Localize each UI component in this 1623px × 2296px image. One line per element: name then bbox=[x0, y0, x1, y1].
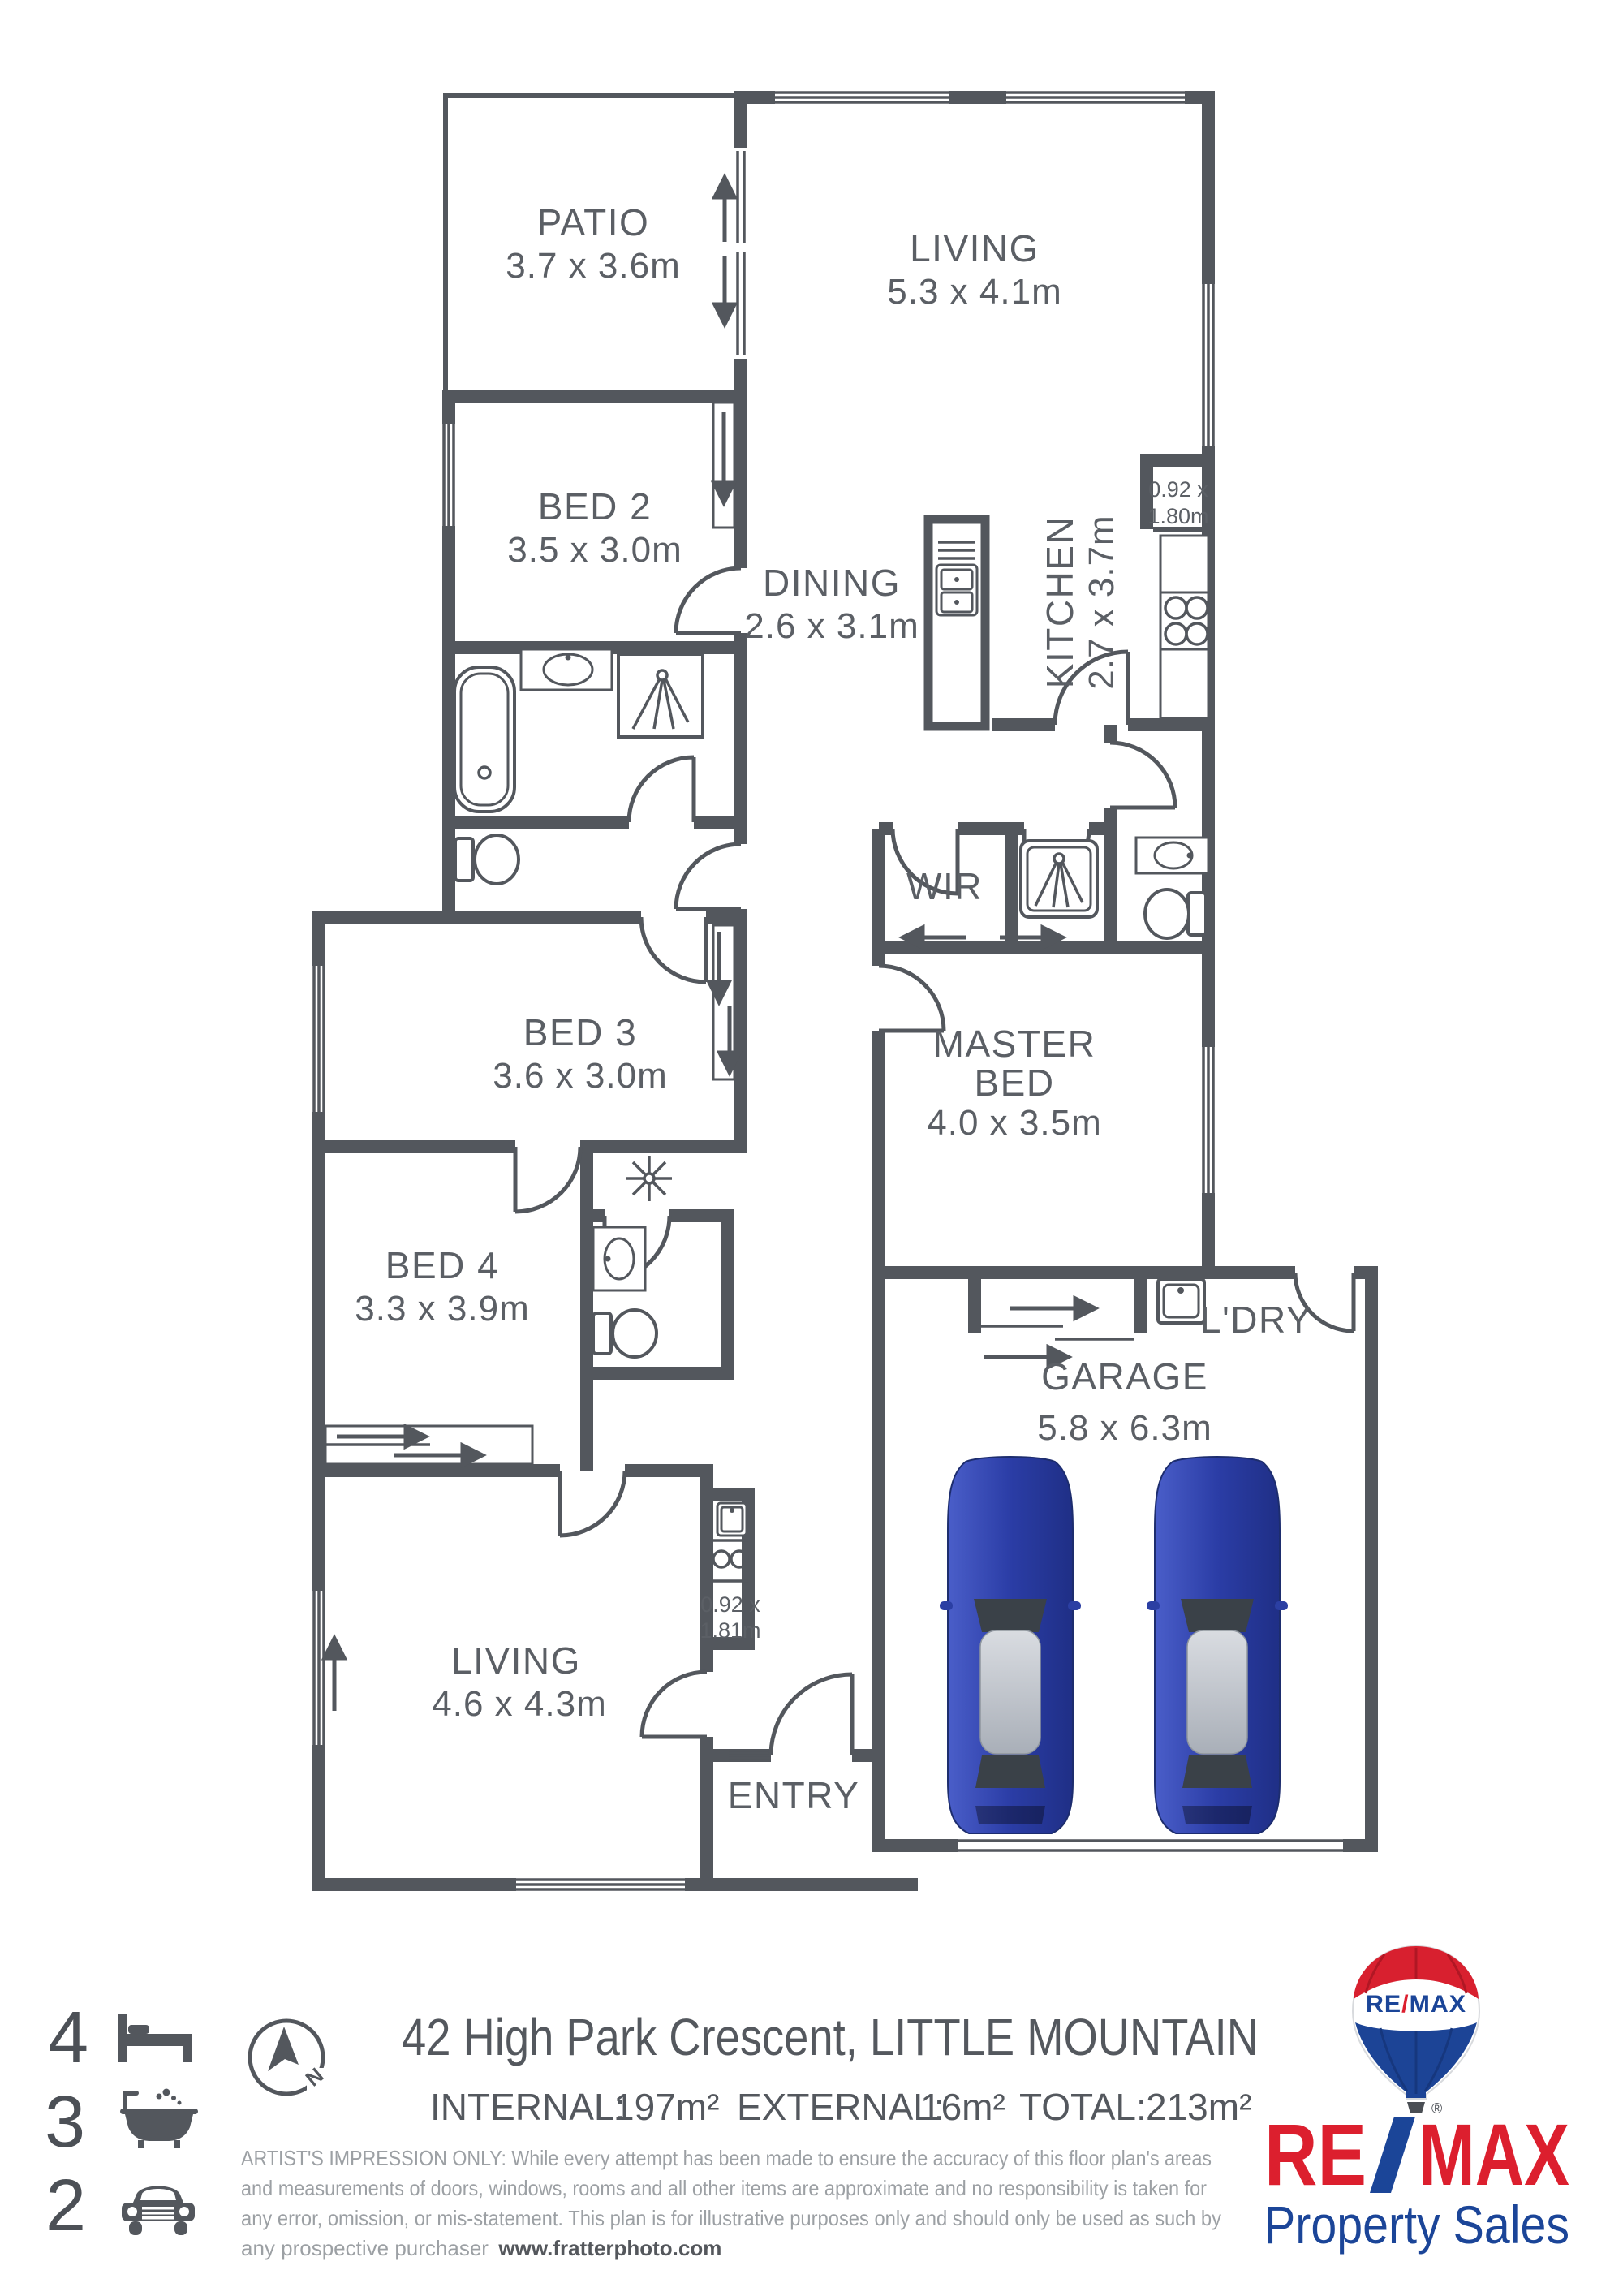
toilet-powder bbox=[1145, 890, 1206, 938]
area-total-label: TOTAL: bbox=[1019, 2086, 1147, 2128]
remax-branding: RE/MAX ® RE MAX Property Sales bbox=[1264, 1946, 1569, 2255]
balloon-max: MAX bbox=[1410, 1991, 1466, 2018]
disclaimer-line-1: ARTIST'S IMPRESSION ONLY: While every at… bbox=[241, 2146, 1212, 2170]
window-bed2-left bbox=[444, 424, 454, 526]
legend-beds-count: 4 bbox=[48, 1997, 88, 2078]
window-living-top-1 bbox=[775, 93, 949, 102]
bathtub bbox=[454, 667, 514, 812]
vanity-basin-bath1 bbox=[521, 649, 612, 690]
label-living-top: LIVING bbox=[910, 227, 1040, 269]
disclaimer-line-4-text: any prospective purchaser bbox=[241, 2236, 489, 2260]
wordmark-slash bbox=[1370, 2117, 1415, 2193]
door-powder bbox=[1110, 743, 1175, 808]
balloon-re: RE bbox=[1366, 1991, 1401, 2018]
remax-balloon-icon: RE/MAX ® bbox=[1353, 1946, 1479, 2117]
area-external-value: 16m² bbox=[920, 2086, 1005, 2128]
shower-ensuite bbox=[1021, 841, 1097, 917]
size-patio: 3.7 x 3.6m bbox=[506, 246, 680, 286]
size-garage: 5.8 x 6.3m bbox=[1037, 1408, 1212, 1448]
door-bed4 bbox=[515, 1147, 580, 1212]
label-bed2: BED 2 bbox=[538, 485, 652, 528]
disclaimer-line-2: and measurements of doors, windows, room… bbox=[241, 2176, 1207, 2200]
toilet-bath2 bbox=[593, 1310, 657, 1357]
door-master bbox=[879, 966, 944, 1031]
footer-text: 42 High Park Crescent, LITTLE MOUNTAIN I… bbox=[241, 2008, 1259, 2260]
garage-door bbox=[958, 1841, 1343, 1850]
size-living-bottom: 4.6 x 4.3m bbox=[432, 1684, 606, 1724]
light-symbol bbox=[626, 1156, 672, 1201]
label-entry: ENTRY bbox=[728, 1774, 860, 1816]
label-patio: PATIO bbox=[537, 201, 650, 243]
garage-car-1 bbox=[940, 1457, 1081, 1833]
remax-wordmark: RE MAX Property Sales bbox=[1264, 2105, 1569, 2255]
vanity-basin-bath2 bbox=[593, 1227, 645, 1290]
garage-car-2 bbox=[1147, 1457, 1288, 1833]
area-external-label: EXTERNAL: bbox=[737, 2086, 945, 2128]
label-kitchen: KITCHEN bbox=[1039, 516, 1081, 688]
dim-pantry-1: 0.92 x bbox=[1148, 477, 1208, 502]
legend-baths-count: 3 bbox=[45, 2082, 85, 2163]
kitchen-island bbox=[928, 519, 985, 726]
balloon-slash: / bbox=[1401, 1991, 1409, 2018]
wordmark-re: RE bbox=[1264, 2105, 1367, 2203]
door-wc1 bbox=[676, 844, 741, 909]
size-bed4: 3.3 x 3.9m bbox=[355, 1289, 529, 1329]
page: { "plan": { "wall_color": "#53575d", "la… bbox=[0, 0, 1623, 2296]
window-master-right bbox=[1203, 1047, 1213, 1193]
size-bed2: 3.5 x 3.0m bbox=[507, 530, 682, 570]
label-bed3: BED 3 bbox=[523, 1011, 637, 1053]
floor-plan-svg: PATIO 3.7 x 3.6m LIVING 5.3 x 4.1m BED 2… bbox=[0, 0, 1623, 2296]
label-master-1: MASTER bbox=[933, 1023, 1096, 1065]
window-living-right bbox=[1203, 284, 1213, 446]
patio-wall bbox=[446, 96, 738, 393]
door-entry-front bbox=[771, 1674, 852, 1755]
label-bed4: BED 4 bbox=[385, 1244, 499, 1286]
size-master: 4.0 x 3.5m bbox=[927, 1103, 1101, 1143]
label-wir: WIR bbox=[906, 865, 983, 907]
disclaimer-line-3: any error, omission, or mis-statement. T… bbox=[241, 2206, 1221, 2230]
bed-icon bbox=[118, 2014, 192, 2062]
compass-icon: N bbox=[250, 2021, 333, 2094]
dim-kitchenette-1: 0.92 x bbox=[700, 1592, 760, 1617]
window-bed3-left bbox=[314, 966, 324, 1112]
door-living2-hall bbox=[560, 1471, 625, 1536]
shower-bath1 bbox=[618, 654, 703, 737]
fixtures bbox=[454, 519, 1288, 1833]
wordmark-max: MAX bbox=[1419, 2105, 1569, 2203]
area-internal-label: INTERNAL: bbox=[430, 2086, 625, 2128]
svg-text:RE/MAX: RE/MAX bbox=[1366, 1991, 1466, 2018]
label-dining: DINING bbox=[763, 562, 901, 604]
dim-pantry-2: 1.80m bbox=[1147, 504, 1208, 528]
door-bath1 bbox=[629, 757, 694, 822]
window-living2-left bbox=[314, 1591, 324, 1745]
disclaimer-website: www.fratterphoto.com bbox=[497, 2236, 721, 2260]
door-living2-entry bbox=[642, 1672, 707, 1737]
remax-tagline: Property Sales bbox=[1264, 2195, 1569, 2255]
label-master-2: BED bbox=[974, 1062, 1054, 1104]
address: 42 High Park Crescent, LITTLE MOUNTAIN bbox=[402, 2008, 1259, 2066]
legend-cars-count: 2 bbox=[45, 2165, 86, 2246]
window-living-top-2 bbox=[1006, 93, 1185, 102]
size-living-top: 5.3 x 4.1m bbox=[887, 272, 1061, 312]
door-bed2 bbox=[676, 568, 741, 633]
laundry-sink bbox=[1158, 1279, 1204, 1323]
area-total-value: 213m² bbox=[1146, 2086, 1251, 2128]
kitchen-bench bbox=[1160, 536, 1208, 718]
label-garage: GARAGE bbox=[1041, 1355, 1208, 1398]
sliding-door-patio bbox=[738, 151, 744, 355]
area-internal-value: 197m² bbox=[613, 2086, 719, 2128]
door-bed3 bbox=[641, 917, 706, 982]
label-living-bottom: LIVING bbox=[451, 1639, 581, 1682]
bath-icon bbox=[120, 2089, 198, 2149]
dim-kitchenette-2: 1.81m bbox=[700, 1618, 760, 1643]
size-dining: 2.6 x 3.1m bbox=[744, 606, 919, 646]
car-icon bbox=[122, 2186, 195, 2236]
toilet-wc1 bbox=[455, 835, 519, 884]
size-kitchen: 2.7 x 3.7m bbox=[1082, 515, 1121, 689]
basin-powder bbox=[1136, 838, 1208, 873]
window-living2-bottom bbox=[516, 1880, 685, 1889]
label-laundry: L'DRY bbox=[1200, 1299, 1312, 1341]
disclaimer-line-4: any prospective purchaser www.fratterpho… bbox=[241, 2236, 721, 2260]
size-bed3: 3.6 x 3.0m bbox=[493, 1056, 667, 1096]
